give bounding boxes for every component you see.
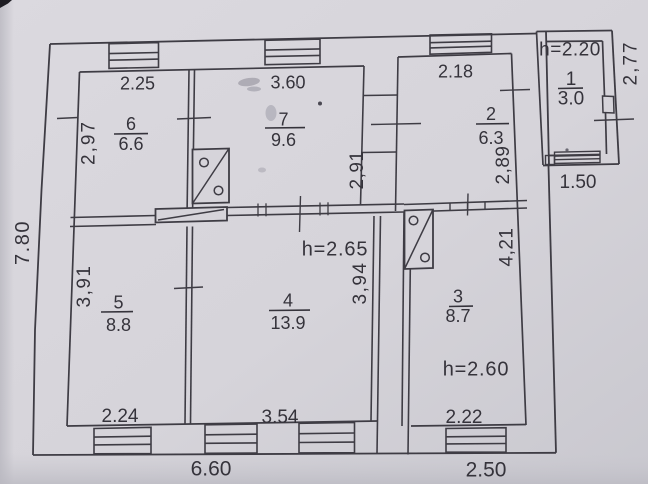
svg-text:6: 6 <box>126 114 136 134</box>
svg-text:13.9: 13.9 <box>270 313 305 333</box>
svg-text:4: 4 <box>283 291 293 311</box>
svg-text:7.80: 7.80 <box>12 220 34 265</box>
svg-text:8.7: 8.7 <box>445 306 470 326</box>
svg-text:3,94: 3,94 <box>350 262 371 305</box>
svg-text:4,21: 4,21 <box>497 228 518 267</box>
svg-text:3.0: 3.0 <box>558 89 584 110</box>
svg-text:h=2.20: h=2.20 <box>539 40 601 61</box>
svg-text:6.60: 6.60 <box>191 458 232 481</box>
svg-text:2.50: 2.50 <box>466 459 507 482</box>
svg-text:7: 7 <box>278 110 288 130</box>
svg-text:h=2.65: h=2.65 <box>302 239 369 261</box>
svg-text:2.25: 2.25 <box>120 74 155 94</box>
svg-text:3,91: 3,91 <box>74 265 95 308</box>
svg-text:3: 3 <box>453 287 463 307</box>
svg-text:3.60: 3.60 <box>270 73 305 93</box>
svg-text:3.54: 3.54 <box>262 407 299 428</box>
svg-text:2,97: 2,97 <box>79 120 100 165</box>
svg-text:1: 1 <box>566 69 577 90</box>
svg-text:2: 2 <box>486 104 496 124</box>
svg-text:2,77: 2,77 <box>621 41 642 86</box>
svg-text:2.18: 2.18 <box>438 62 473 82</box>
svg-text:2.24: 2.24 <box>102 406 139 427</box>
svg-text:9.6: 9.6 <box>271 130 296 150</box>
svg-text:5: 5 <box>113 293 123 313</box>
svg-text:h=2.60: h=2.60 <box>443 359 510 381</box>
svg-text:8.8: 8.8 <box>106 315 131 335</box>
svg-text:1.50: 1.50 <box>560 172 597 193</box>
svg-text:6.6: 6.6 <box>118 134 143 154</box>
svg-text:6.3: 6.3 <box>478 128 503 148</box>
svg-text:2,91: 2,91 <box>347 151 368 190</box>
svg-text:2.22: 2.22 <box>446 407 483 428</box>
svg-text:2,89: 2,89 <box>493 146 514 185</box>
